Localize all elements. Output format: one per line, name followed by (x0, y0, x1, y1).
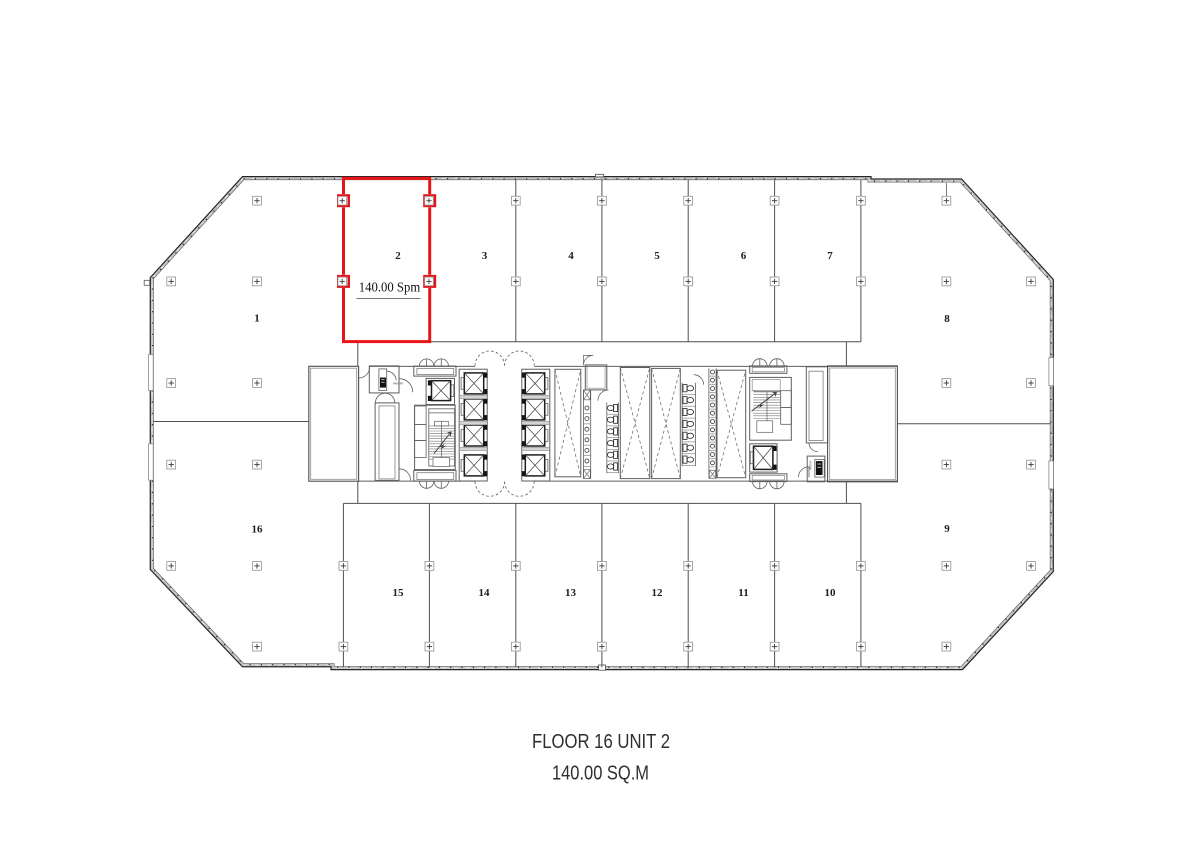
svg-text:14: 14 (479, 587, 491, 599)
svg-text:1: 1 (254, 313, 260, 325)
svg-text:2: 2 (395, 250, 401, 262)
svg-text:5: 5 (654, 250, 660, 262)
svg-text:11: 11 (738, 587, 748, 599)
svg-text:12: 12 (652, 587, 664, 599)
svg-text:10: 10 (825, 587, 837, 599)
svg-text:PANTRY: PANTRY (393, 381, 404, 385)
svg-text:8: 8 (944, 313, 950, 325)
svg-text:140.00 SQ.M: 140.00 SQ.M (552, 762, 649, 785)
svg-text:6: 6 (741, 250, 747, 262)
svg-text:3: 3 (482, 250, 488, 262)
svg-text:7: 7 (827, 250, 833, 262)
svg-text:9: 9 (944, 523, 950, 535)
svg-text:16: 16 (252, 524, 264, 536)
svg-text:13: 13 (565, 587, 577, 599)
svg-text:140.00 Spm: 140.00 Spm (359, 280, 421, 295)
svg-text:FLOOR 16 UNIT 2: FLOOR 16 UNIT 2 (532, 730, 670, 753)
svg-text:4: 4 (568, 250, 574, 262)
svg-text:15: 15 (393, 587, 405, 599)
svg-text:PANTRY: PANTRY (810, 460, 813, 470)
